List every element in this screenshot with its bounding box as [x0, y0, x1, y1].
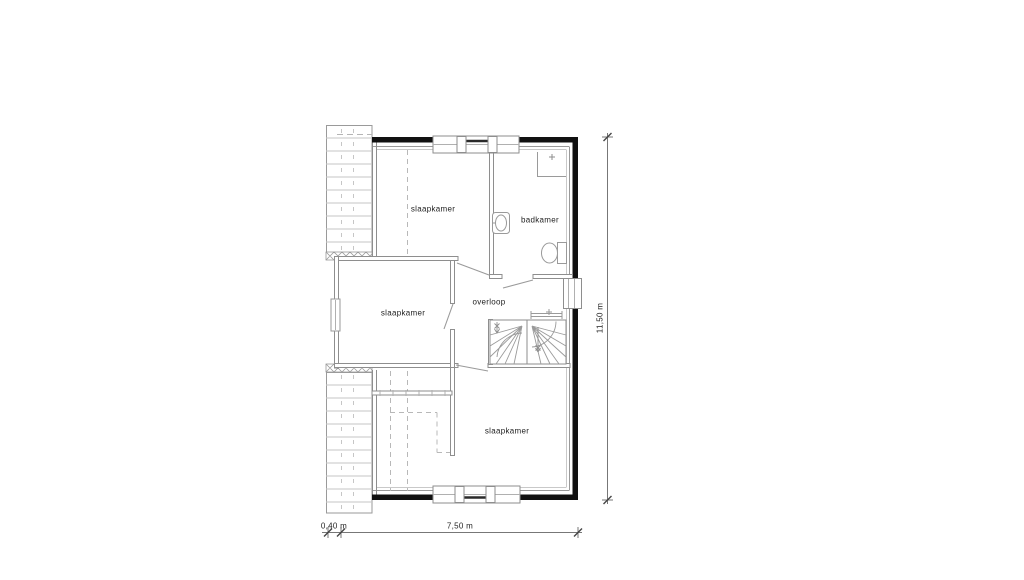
winder-stairs — [490, 309, 566, 364]
knee-wall-bottom-room — [372, 391, 452, 395]
room-label-badkamer: badkamer — [521, 216, 559, 225]
wall-badkamer-south-left — [490, 275, 503, 279]
wall-east-upper — [573, 137, 579, 279]
window-south-mullion-2 — [486, 487, 495, 503]
toilet-cistern — [558, 243, 567, 264]
dimension-label-bottom-main: 7,50 m — [447, 522, 473, 531]
room-label-slaapkamer-top: slaapkamer — [411, 205, 455, 214]
window-dormer-west — [331, 299, 340, 331]
headroom-dashed-lines — [390, 150, 451, 491]
window-north-mullion-1 — [457, 137, 466, 153]
dimension-label-bottom-left: 0,40 m — [321, 522, 347, 531]
wall-dormer-west-lower — [335, 331, 339, 368]
shower-drain-icon — [549, 154, 555, 160]
window-north — [433, 136, 519, 153]
washbasin-bowl — [496, 215, 507, 231]
wall-dormer-east-lower — [451, 330, 455, 368]
window-south — [433, 486, 520, 503]
stairs-railing — [531, 309, 562, 319]
roof-strip-top — [326, 126, 372, 253]
wall-dormer-south — [335, 364, 459, 368]
door-leaf-slaapkamer-bottom — [456, 365, 488, 371]
room-label-slaapkamer-middle: slaapkamer — [381, 309, 425, 318]
toilet-bowl — [542, 243, 558, 263]
window-south-mullion-1 — [455, 487, 464, 503]
exterior-walls — [372, 137, 578, 500]
wall-dormer-east-upper — [451, 261, 455, 304]
door-leaf-badkamer — [503, 280, 533, 288]
roof-strip-bottom-border — [327, 373, 373, 514]
toilet — [542, 243, 567, 264]
inner-wall-lines — [373, 142, 570, 495]
floor-plan-drawing — [0, 0, 1024, 580]
dimension-label-right: 11,50 m — [596, 303, 605, 333]
window-east-frame — [564, 279, 582, 309]
door-leaf-slaapkamer-top — [457, 263, 489, 275]
room-label-slaapkamer-bottom: slaapkamer — [485, 427, 529, 436]
window-east — [564, 279, 582, 309]
inner-face-light — [376, 150, 567, 488]
inner-face-dark — [373, 147, 570, 491]
wall-badkamer-south-right — [533, 275, 573, 279]
wall-badkamer-west — [490, 143, 494, 277]
floor-plan: slaapkamer badkamer slaapkamer overloop … — [0, 0, 1024, 580]
wall-east-lower — [573, 308, 579, 500]
room-label-overloop: overloop — [472, 298, 505, 307]
closet-dashed-outline — [390, 413, 451, 453]
door-leaf-slaapkamer-middle — [444, 304, 453, 329]
wall-dormer-west-upper — [335, 257, 339, 300]
wall-bottom-room-west — [451, 368, 455, 456]
washbasin — [493, 213, 510, 234]
roof-strip-top-border — [327, 126, 373, 253]
left-knee-wall-lines — [373, 142, 377, 495]
window-north-mullion-2 — [488, 137, 497, 153]
wall-dormer-north — [335, 257, 459, 261]
bathroom-fixtures — [493, 152, 567, 264]
roof-strip-bottom — [326, 373, 372, 514]
headroom-lines-bottom-room — [391, 371, 408, 491]
